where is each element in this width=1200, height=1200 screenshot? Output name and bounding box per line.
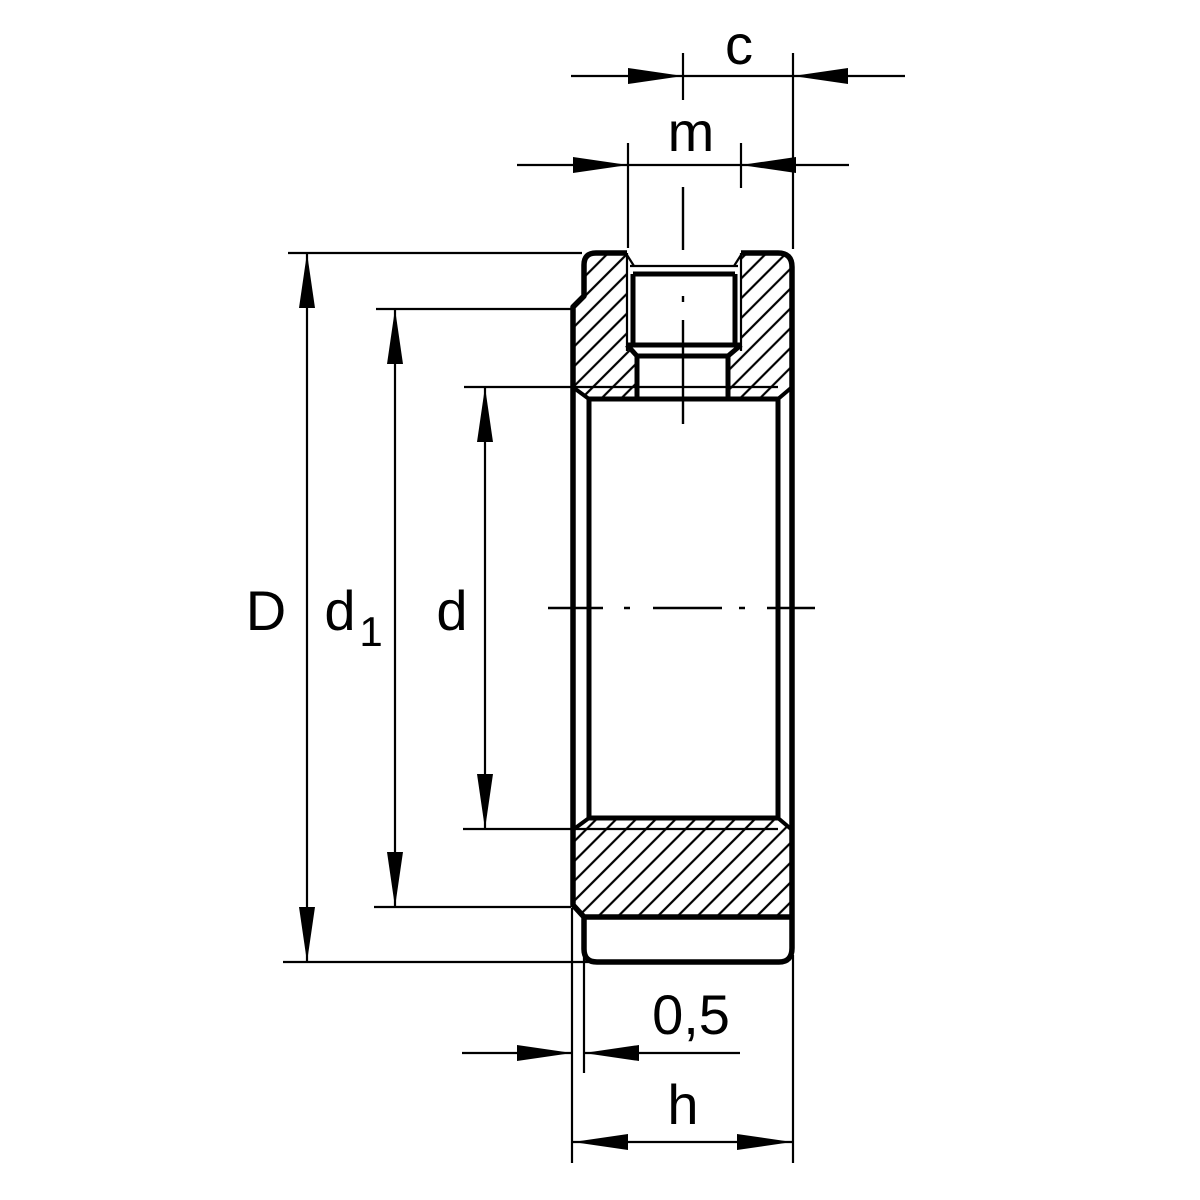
label-d: d (436, 579, 467, 642)
label-d1: d (324, 579, 355, 642)
label-c: c (725, 13, 753, 76)
label-recess: 0,5 (652, 983, 730, 1046)
label-D: D (246, 579, 286, 642)
label-d1-subscript: 1 (359, 608, 382, 655)
label-h: h (667, 1073, 698, 1136)
locknut-section-drawing: c m D d 1 d 0,5 (0, 0, 1200, 1200)
hatch-bottom-section (573, 818, 792, 917)
canvas-background (0, 0, 1200, 1200)
label-m: m (668, 100, 715, 163)
